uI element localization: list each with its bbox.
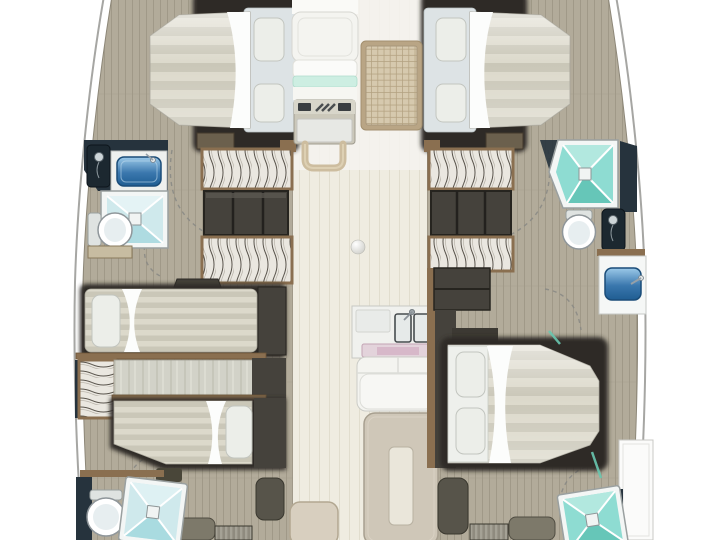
ottoman: [256, 478, 284, 520]
hanging-locker: [79, 360, 115, 418]
entry-step: [290, 502, 338, 540]
vanity-locker: [88, 246, 132, 258]
pillow: [226, 406, 252, 458]
console-drawer: [297, 119, 352, 142]
deck-strip: [293, 87, 357, 100]
cooktop-strip-inner: [377, 347, 419, 355]
toilet-seat: [104, 218, 126, 242]
bench-seat-cushion: [293, 60, 357, 78]
shower-head-icon: [609, 216, 618, 225]
shower-mixer-panel: [87, 145, 110, 187]
pillow: [92, 295, 120, 347]
aqua-cushion: [293, 76, 357, 87]
console-vent: [298, 103, 311, 111]
bedside-unit: [254, 398, 286, 468]
catamaran-floorplan: [0, 0, 720, 540]
hanging-wardrobe: [429, 237, 513, 271]
bedside-unit: [252, 358, 286, 398]
pillow: [254, 18, 284, 61]
head-bulkhead: [620, 141, 637, 212]
locker-top-highlight: [206, 193, 286, 198]
bed-step: [197, 133, 234, 149]
shower: [557, 485, 629, 540]
bench-seat: [509, 517, 555, 540]
hanging-wardrobe: [429, 149, 513, 189]
bench-seat-back: [292, 12, 358, 62]
console-vent: [338, 103, 351, 111]
pillow: [456, 352, 485, 397]
galley-worktop: [356, 310, 390, 332]
shower-drain: [146, 505, 159, 518]
port-wardrobes: [202, 149, 292, 283]
pillow: [456, 408, 485, 454]
toilet-seat: [568, 221, 590, 245]
pillow: [254, 84, 284, 122]
trim-rail: [76, 353, 266, 359]
hanging-wardrobe: [202, 149, 292, 189]
toilet-seat: [93, 504, 119, 530]
shower-drain: [585, 513, 599, 527]
bed-step: [486, 133, 523, 149]
berth-mid-section: [114, 360, 266, 395]
vanity-shelf: [597, 249, 645, 256]
woven-mat: [366, 46, 417, 125]
galley-sink-left: [395, 314, 411, 342]
step-drawers: [215, 526, 252, 540]
locker-drawers: [431, 191, 511, 235]
bedside-unit: [258, 287, 286, 355]
shower: [118, 477, 187, 540]
washbasin: [605, 268, 641, 300]
shower-drain: [579, 168, 591, 180]
pillow: [436, 84, 466, 122]
sofa-seat: [360, 374, 434, 409]
pillow: [436, 18, 466, 61]
table-inset: [389, 447, 413, 525]
step-drawers: [470, 524, 508, 540]
hanging-wardrobe: [202, 237, 292, 283]
deck-light: [351, 240, 365, 254]
shower-head-icon: [95, 153, 104, 162]
ottoman: [438, 478, 468, 534]
vanity-shelf: [80, 470, 164, 477]
floorplan-stage: [0, 0, 720, 540]
